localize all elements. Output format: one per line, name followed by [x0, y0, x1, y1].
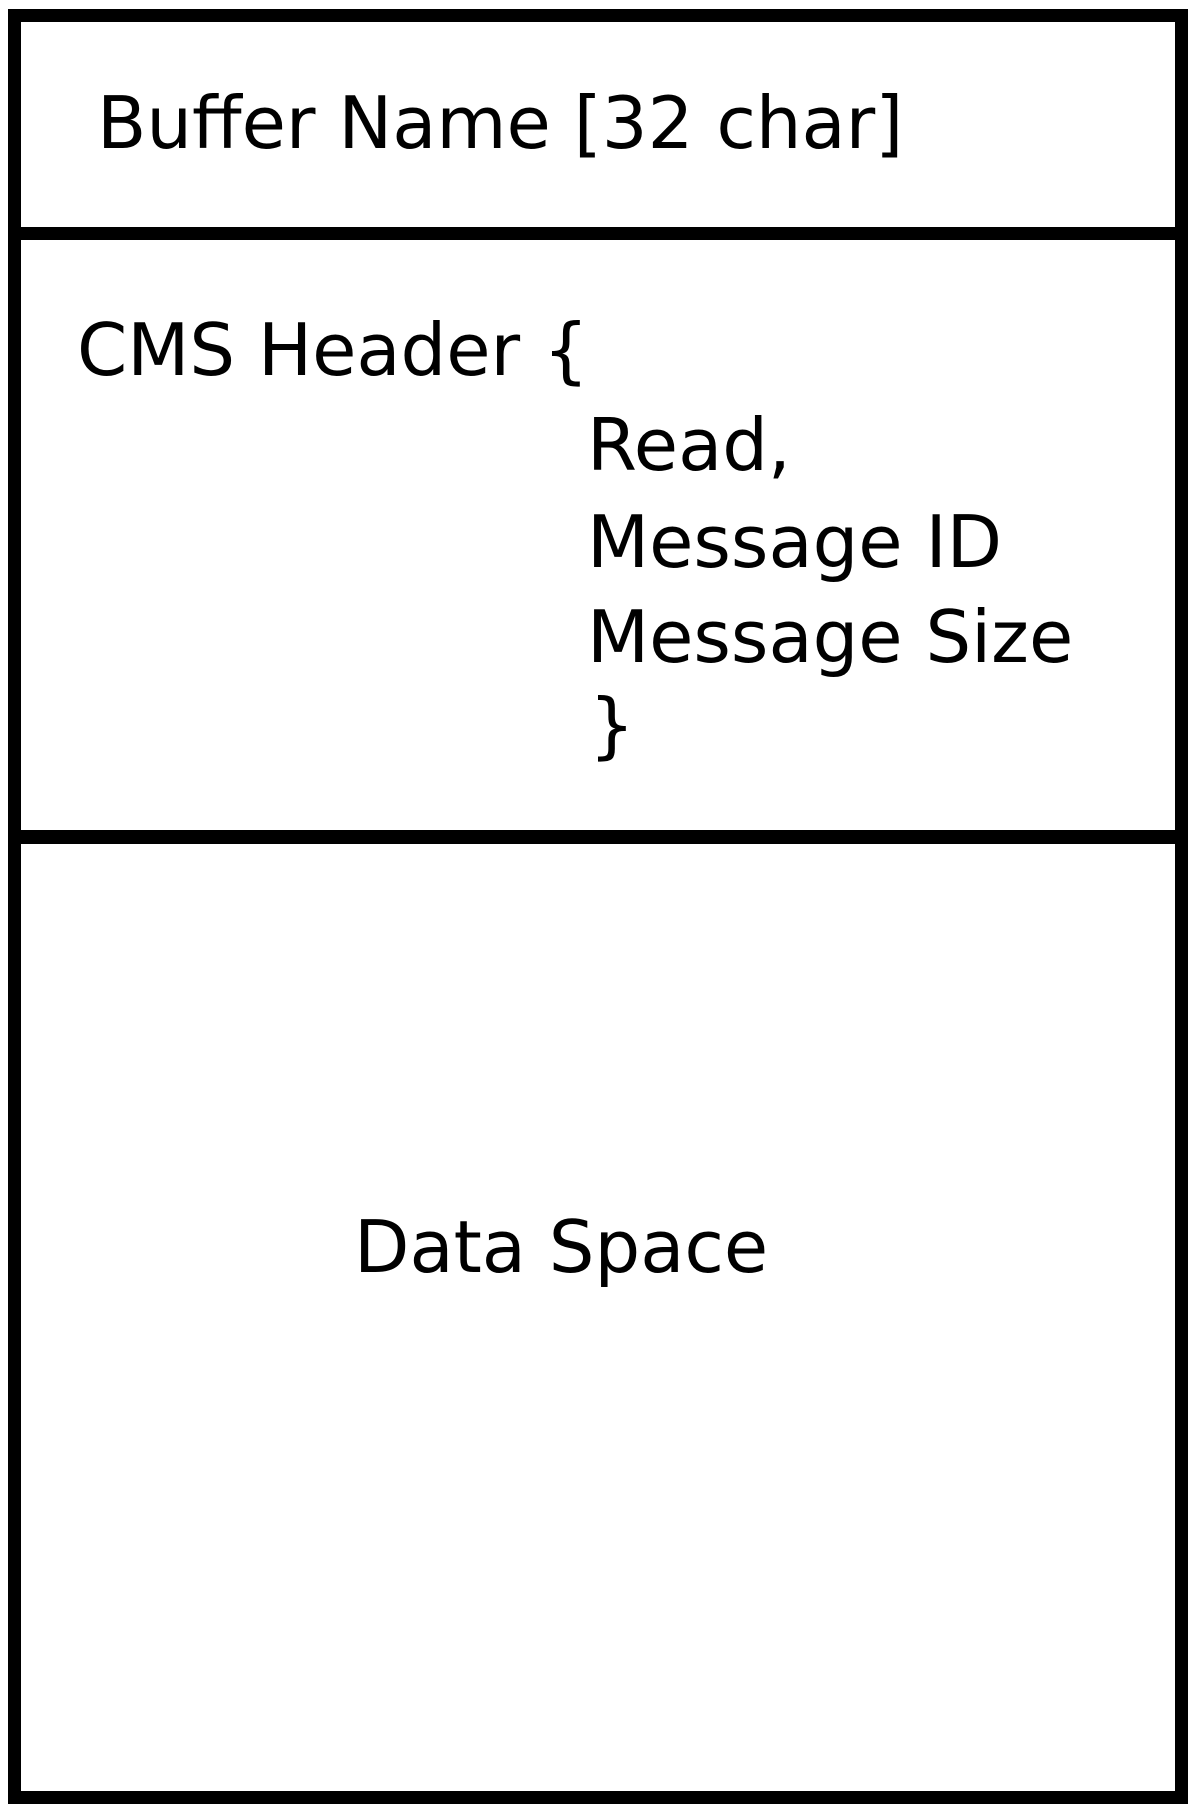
buffer-memory-layout-diagram: Buffer Name [32 char] CMS Header { Read,…	[0, 0, 1188, 1804]
cms-header-close-brace: }	[589, 689, 635, 761]
divider-cms-header-data-space	[10, 830, 1182, 844]
cms-header-field-read: Read,	[587, 409, 791, 481]
data-space-label: Data Space	[354, 1211, 768, 1283]
buffer-name-label: Buffer Name [32 char]	[97, 87, 903, 159]
cms-header-field-message-id: Message ID	[587, 506, 1002, 578]
buffer-outline-box	[8, 9, 1188, 1804]
cms-header-open-label: CMS Header {	[77, 314, 589, 386]
divider-buffer-name-cms-header	[10, 227, 1182, 240]
cms-header-field-message-size: Message Size	[587, 601, 1073, 673]
